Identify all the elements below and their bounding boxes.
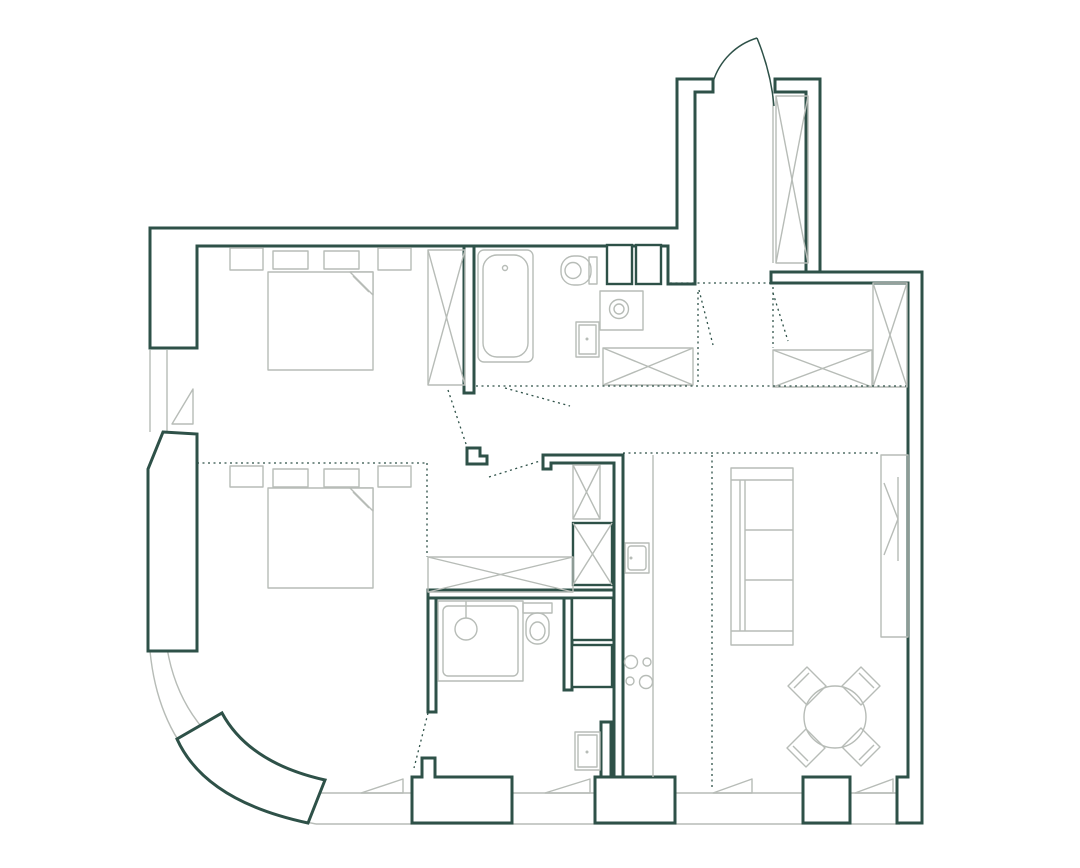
washer2-knob	[586, 751, 589, 754]
window-opening-triangle-2	[545, 779, 590, 793]
wall-left-pier	[148, 432, 197, 651]
wall-hall-bracket	[467, 448, 487, 464]
washer1-knob	[586, 338, 589, 341]
entry-door-swing-b	[773, 293, 788, 341]
bedroom1-bed	[268, 272, 373, 370]
dining-table	[804, 686, 866, 748]
apartment-floor-plan	[0, 0, 1080, 868]
dining-chair-nw	[788, 667, 826, 705]
wall-curved-corner	[177, 713, 325, 823]
shower-tray-inner	[443, 606, 518, 676]
bedroom2-bed	[268, 488, 373, 588]
dining-chair-se-back	[859, 745, 874, 760]
bedroom2-nightstand-left	[230, 466, 263, 487]
bedroom1-nightstand-right	[378, 248, 411, 270]
wall-bottom-pier-c	[803, 777, 850, 823]
window-opening-triangle-1	[361, 779, 403, 793]
entry-door-arc	[713, 38, 757, 82]
vanity-basin-inner	[614, 304, 624, 314]
vanity-counter	[600, 291, 643, 330]
window-opening-triangle-3	[713, 779, 752, 793]
bedroom2-door-swing	[489, 461, 540, 477]
wall-bathroom2-west	[428, 598, 436, 712]
shaft-bathroom1-b	[636, 245, 661, 284]
bedroom2-pillow-right	[324, 469, 359, 487]
tv-console	[881, 455, 908, 637]
toilet2-tank	[523, 603, 552, 613]
bedroom1-pillow-right	[324, 251, 359, 269]
bedroom2-pillow-left	[273, 469, 308, 487]
wall-bottom-pier-a	[412, 758, 512, 823]
wall-bathroom2-east	[564, 598, 572, 690]
window-opening-triangle-4	[855, 779, 893, 793]
dining-chair-sw	[787, 729, 825, 767]
cooktop-burner-1	[625, 656, 638, 669]
dining-chair-nw-back	[794, 673, 809, 688]
cooktop-burner-2	[643, 658, 651, 666]
wall-bottom-pier-b	[595, 777, 675, 823]
bedroom1-pillow-left	[273, 251, 308, 269]
bedroom2-nightstand-right	[378, 466, 411, 487]
dining-chair-ne-back	[859, 673, 874, 688]
floor-plan-canvas	[0, 0, 1080, 868]
cooktop-burner-4	[640, 676, 653, 689]
shower-tray	[438, 601, 523, 681]
kitchen-sink-tap	[630, 557, 633, 560]
toilet1-seat	[565, 263, 581, 279]
window-left-opening-triangle	[172, 389, 193, 424]
dining-chair-sw-back	[793, 746, 808, 761]
wall-entrance-right	[775, 79, 820, 272]
vanity-basin-outer	[610, 300, 629, 319]
shaft-bathroom1-a	[607, 245, 632, 284]
tv-screen	[884, 483, 898, 555]
cooktop-burner-3	[626, 677, 634, 685]
bedroom1-door-swing	[448, 390, 467, 447]
shaft-bathroom2-a	[572, 598, 613, 640]
wall-bathroom2-north	[428, 590, 614, 598]
bathroom1-door-swing	[505, 388, 570, 406]
shaft-bathroom2-b	[572, 645, 612, 687]
shower-head	[455, 618, 477, 640]
entry-door-swing-a	[699, 290, 713, 345]
bathtub-drain	[503, 266, 508, 271]
bedroom1-nightstand-left	[230, 248, 263, 270]
toilet2-seat	[530, 622, 545, 640]
wall-bathroom2-stub	[601, 722, 611, 777]
entry-door-leaf	[757, 38, 774, 106]
toilet1-tank	[589, 257, 597, 284]
bathtub-outer	[478, 250, 533, 362]
